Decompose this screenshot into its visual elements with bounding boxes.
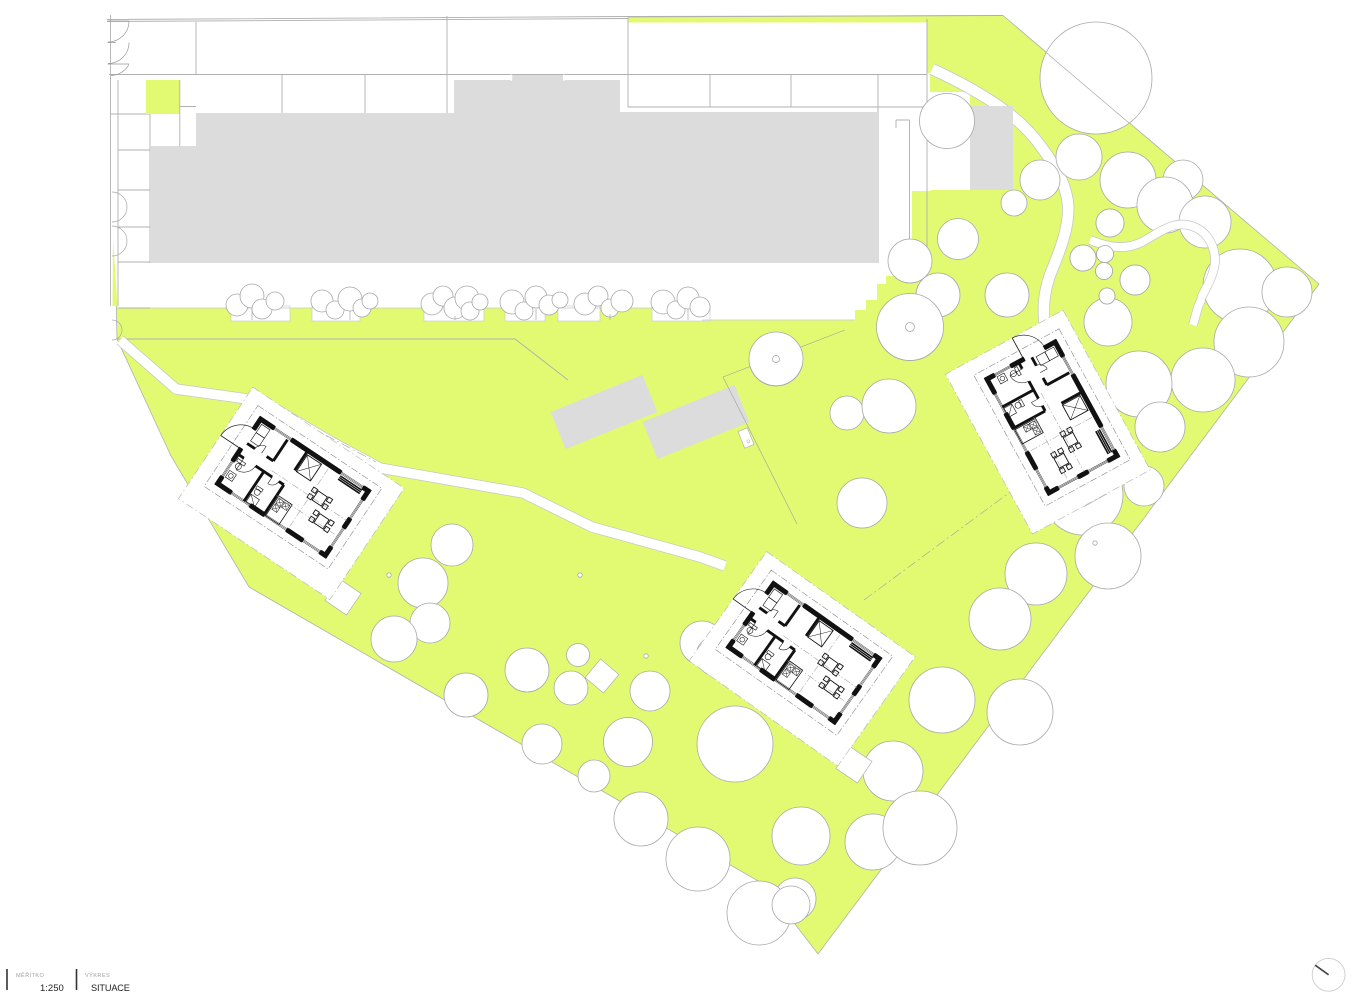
- svg-text:1:250: 1:250: [40, 983, 64, 994]
- svg-text:SITUACE: SITUACE: [91, 983, 130, 993]
- svg-text:VÝKRES: VÝKRES: [85, 972, 110, 979]
- svg-text:MĚŘÍTKO: MĚŘÍTKO: [16, 971, 45, 979]
